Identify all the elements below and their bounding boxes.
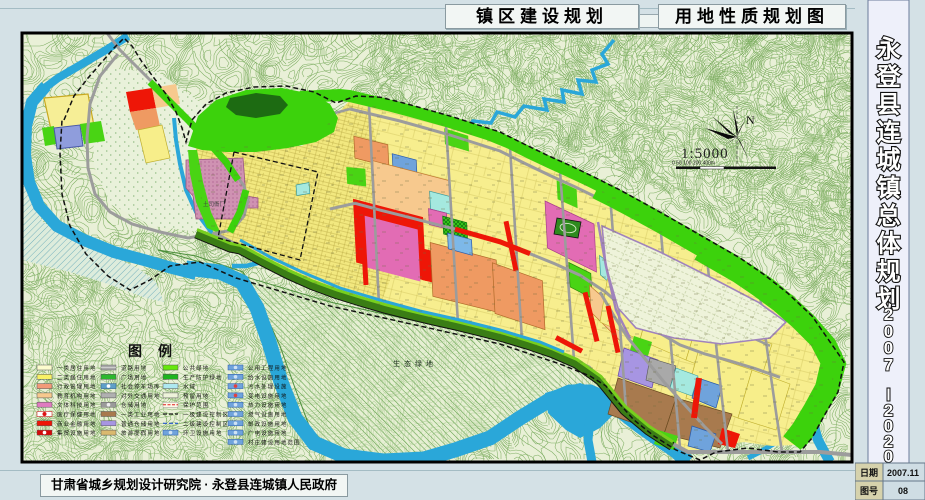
svg-text:2007.11: 2007.11 — [887, 468, 919, 478]
svg-text:医疗保健用地: 医疗保健用地 — [57, 411, 97, 419]
svg-text:邮政设施用地: 邮政设施用地 — [248, 420, 288, 428]
svg-text:0 50 100 200: 0 50 100 200 400m — [672, 161, 715, 167]
svg-text:生态绿地: 生态绿地 — [393, 359, 437, 368]
svg-text:社会停车场库: 社会停车场库 — [121, 383, 161, 391]
svg-text:镇: 镇 — [877, 175, 901, 202]
svg-text:水域: 水域 — [183, 383, 196, 391]
svg-text:图号: 图号 — [860, 486, 878, 496]
svg-text:变电设施用地: 变电设施用地 — [248, 392, 288, 400]
svg-text:城: 城 — [877, 146, 901, 174]
svg-text:县: 县 — [877, 92, 901, 119]
svg-text:预留用地: 预留用地 — [183, 392, 209, 400]
svg-text:普通仓储用地: 普通仓储用地 — [121, 420, 161, 428]
svg-text:仓储用地: 仓储用地 — [121, 401, 147, 409]
svg-text:08: 08 — [898, 486, 908, 496]
svg-text:热力设施用地: 热力设施用地 — [248, 401, 288, 409]
svg-text:环卫设施用地: 环卫设施用地 — [183, 429, 223, 437]
svg-text:文体科技用地: 文体科技用地 — [57, 401, 97, 409]
svg-text:道路用地: 道路用地 — [121, 364, 147, 372]
svg-text:公用工程用地: 公用工程用地 — [248, 364, 288, 372]
svg-text:行政管理用地: 行政管理用地 — [57, 383, 97, 391]
svg-text:总: 总 — [877, 202, 901, 230]
svg-text:一级建设控制区: 一级建设控制区 — [183, 411, 229, 419]
svg-text:保护范围: 保护范围 — [183, 401, 209, 409]
svg-text:集贸设施用地: 集贸设施用地 — [57, 429, 97, 437]
svg-text:广电设施用地: 广电设施用地 — [248, 429, 288, 437]
svg-text:体: 体 — [877, 231, 902, 258]
svg-text:土司衙门: 土司衙门 — [203, 200, 225, 208]
svg-text:二级建设控制区: 二级建设控制区 — [183, 420, 229, 428]
svg-text:规: 规 — [877, 258, 901, 285]
svg-text:燃气设施用地: 燃气设施用地 — [248, 411, 288, 419]
svg-text:广场用地: 广场用地 — [121, 373, 147, 381]
svg-text:图例: 图例 — [128, 343, 188, 359]
svg-text:旅游度假用地: 旅游度假用地 — [121, 429, 161, 437]
svg-text:登: 登 — [876, 64, 902, 91]
svg-text:村庄建设用地范围: 村庄建设用地范围 — [248, 438, 301, 446]
svg-text:公共绿地: 公共绿地 — [183, 364, 209, 372]
svg-text:污水处理设施: 污水处理设施 — [248, 383, 288, 391]
svg-text:生产防护绿地: 生产防护绿地 — [183, 373, 223, 381]
svg-text:教育机构用地: 教育机构用地 — [57, 392, 97, 400]
svg-text:7: 7 — [884, 355, 893, 374]
svg-text:N: N — [746, 113, 755, 127]
svg-text:日期: 日期 — [860, 467, 878, 478]
svg-text:对外交通用地: 对外交通用地 — [121, 392, 161, 400]
svg-text:一类工业用地: 一类工业用地 — [121, 411, 161, 419]
svg-text:连: 连 — [877, 118, 902, 146]
svg-text:二类居住用地: 二类居住用地 — [57, 373, 97, 381]
svg-text:商业金融用地: 商业金融用地 — [57, 420, 97, 428]
svg-text:永: 永 — [877, 36, 901, 63]
svg-text:一类居住用地: 一类居住用地 — [57, 364, 97, 372]
svg-text:给水设施用地: 给水设施用地 — [248, 373, 288, 381]
